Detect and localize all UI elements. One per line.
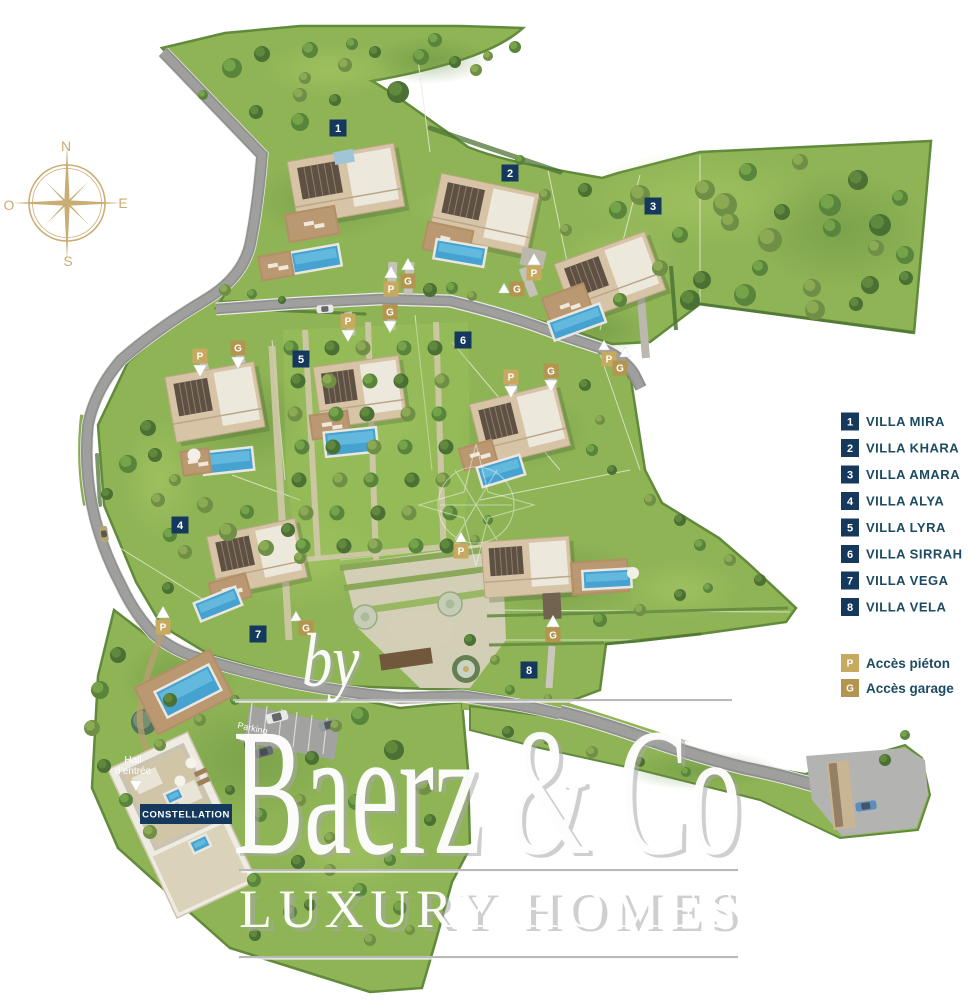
- svg-text:O: O: [4, 197, 15, 213]
- svg-text:G: G: [386, 308, 394, 319]
- svg-text:P: P: [847, 659, 854, 670]
- svg-text:Accès piéton: Accès piéton: [866, 656, 950, 671]
- svg-text:VILLA LYRA: VILLA LYRA: [866, 520, 946, 535]
- svg-text:VILLA VEGA: VILLA VEGA: [866, 573, 949, 588]
- svg-text:Baerz & Co: Baerz & Co: [233, 692, 741, 893]
- svg-text:4: 4: [177, 520, 184, 532]
- svg-text:1: 1: [335, 123, 341, 135]
- svg-text:d’entrée: d’entrée: [115, 766, 152, 777]
- svg-text:G: G: [846, 684, 854, 695]
- svg-text:VILLA MIRA: VILLA MIRA: [866, 414, 945, 429]
- svg-text:VILLA SIRRAH: VILLA SIRRAH: [866, 547, 963, 562]
- svg-text:7: 7: [847, 575, 853, 587]
- svg-text:4: 4: [847, 496, 854, 508]
- svg-text:5: 5: [847, 522, 853, 534]
- svg-text:VILLA ALYA: VILLA ALYA: [866, 494, 944, 509]
- svg-text:P: P: [606, 355, 613, 366]
- svg-text:P: P: [160, 623, 167, 634]
- svg-text:CONSTELLATION: CONSTELLATION: [142, 810, 230, 821]
- svg-text:3: 3: [650, 201, 656, 213]
- svg-text:VILLA AMARA: VILLA AMARA: [866, 467, 960, 482]
- svg-text:3: 3: [847, 469, 853, 481]
- svg-text:G: G: [513, 285, 521, 296]
- svg-text:P: P: [197, 352, 204, 363]
- svg-text:P: P: [388, 285, 395, 296]
- svg-text:N: N: [61, 138, 71, 154]
- svg-text:P: P: [531, 269, 538, 280]
- svg-text:G: G: [547, 367, 555, 378]
- svg-text:E: E: [118, 195, 127, 211]
- svg-text:P: P: [458, 547, 465, 558]
- svg-text:G: G: [234, 344, 242, 355]
- svg-text:G: G: [549, 631, 557, 642]
- svg-text:G: G: [616, 364, 624, 375]
- svg-text:7: 7: [255, 629, 261, 641]
- svg-text:VILLA KHARA: VILLA KHARA: [866, 441, 959, 456]
- svg-text:Hall: Hall: [124, 755, 141, 766]
- svg-text:8: 8: [526, 665, 532, 677]
- svg-text:Accès garage: Accès garage: [866, 681, 954, 696]
- svg-text:by: by: [302, 619, 360, 703]
- svg-text:2: 2: [507, 168, 513, 180]
- svg-text:8: 8: [847, 602, 853, 614]
- svg-text:1: 1: [847, 416, 853, 428]
- svg-text:S: S: [63, 253, 72, 269]
- svg-text:P: P: [345, 317, 352, 328]
- svg-text:G: G: [404, 277, 412, 288]
- svg-text:6: 6: [460, 335, 466, 347]
- svg-text:6: 6: [847, 549, 853, 561]
- svg-text:5: 5: [298, 354, 304, 366]
- svg-text:2: 2: [847, 443, 853, 455]
- svg-text:VILLA VELA: VILLA VELA: [866, 600, 946, 615]
- svg-text:P: P: [508, 373, 515, 384]
